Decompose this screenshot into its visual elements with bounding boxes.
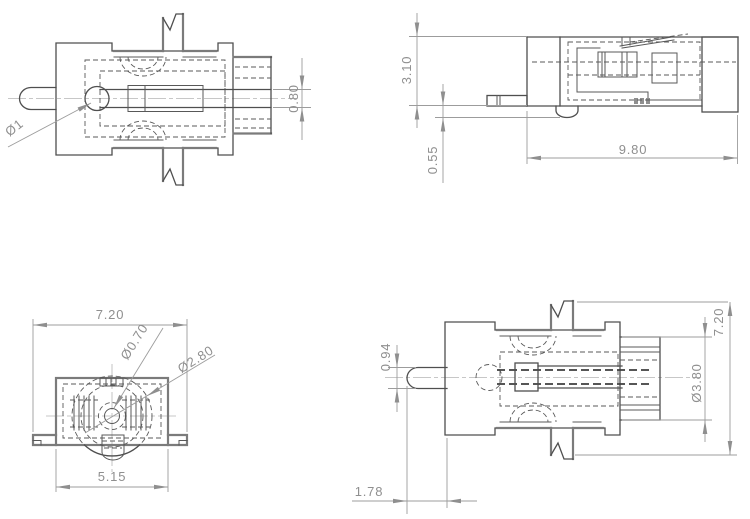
dimension-overall-length: 9.80: [527, 111, 738, 164]
part-outline: [527, 37, 738, 112]
toggle-shaft-bottom-break: [163, 148, 183, 185]
top-tab: [100, 378, 123, 386]
terminal-extension: [620, 337, 660, 420]
dim-label-overall-width: 7.20: [96, 307, 125, 322]
dim-label-overall-length: 9.80: [619, 142, 648, 157]
hidden-lines: [476, 336, 650, 422]
dimension-boss-diameter: Ø3.80: [622, 317, 712, 442]
part-outline: [445, 322, 620, 435]
view-side-section: 0.80 Ø1: [2, 14, 311, 185]
dim-label-slot-width: 0.80: [286, 84, 301, 113]
dim-label-boss-diameter: Ø3.80: [689, 363, 704, 402]
view-side: 0.94 1.78 Ø3.80 7.20: [352, 301, 737, 514]
toggle-shaft-bottom-break: [551, 428, 573, 459]
dim-label-pin-diameter: Ø1: [2, 116, 26, 139]
toggle-shaft-top-break: [551, 301, 573, 330]
cad-drawing: 0.80 Ø1: [0, 0, 750, 519]
contact-stripes-left: [70, 396, 98, 430]
contact-stripes-right: [122, 396, 150, 430]
engineering-drawing-page: 0.80 Ø1: [0, 0, 750, 519]
dim-label-overall-height: 7.20: [711, 308, 726, 337]
leader-center-hole-diameter: Ø0.70: [112, 321, 163, 409]
dimension-body-height: 3.10: [399, 13, 527, 128]
pin-lead: [407, 368, 447, 389]
dimension-overall-height: 7.20: [575, 302, 737, 455]
dimension-slot-width: 0.80: [273, 58, 311, 140]
dimension-pin-thickness: 0.94: [378, 343, 416, 412]
view-top: 3.10 0.55 9.80: [399, 13, 738, 183]
dim-label-inner-boss-diameter: Ø2.80: [175, 342, 216, 376]
bottom-boss-bump: [556, 106, 578, 118]
dim-label-body-width: 5.15: [98, 469, 127, 484]
leader-pin-diameter: Ø1: [2, 101, 92, 147]
contact-slot: [515, 363, 622, 391]
dimension-pin-protrusion: 1.78: [352, 386, 477, 514]
dim-label-boss-protrusion: 0.55: [425, 146, 440, 175]
view-front: 7.20 5.15 Ø0.70 Ø2.80: [33, 307, 216, 492]
dim-label-body-height: 3.10: [399, 56, 414, 85]
toggle-shaft-top-break: [163, 14, 183, 51]
terminal-extension: [234, 57, 272, 134]
dim-label-pin-thickness: 0.94: [378, 343, 393, 372]
leader-inner-boss-diameter: Ø2.80: [85, 342, 216, 433]
solder-tab: [487, 96, 527, 107]
internal-details: [577, 37, 702, 104]
dim-label-pin-protrusion: 1.78: [355, 484, 384, 499]
dimension-boss-protrusion: 0.55: [425, 84, 560, 183]
